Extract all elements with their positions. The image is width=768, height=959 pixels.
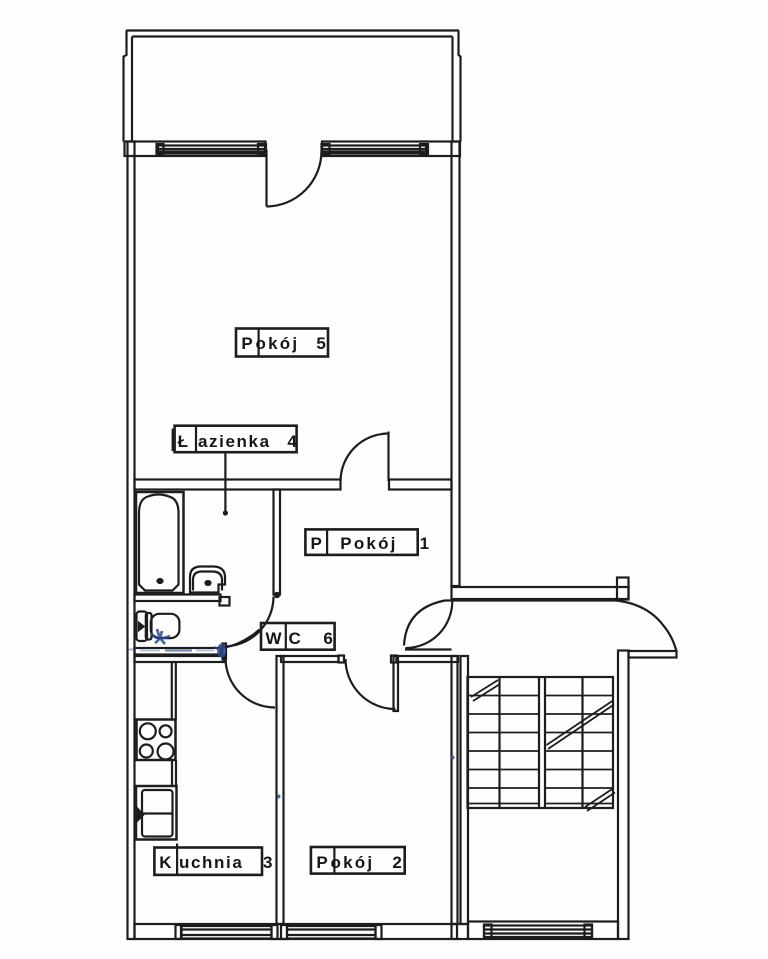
svg-text:K: K: [159, 853, 173, 872]
svg-text:5: 5: [316, 334, 328, 353]
svg-text:2: 2: [392, 853, 404, 872]
svg-text:uchnia: uchnia: [179, 853, 243, 872]
svg-text:C: C: [289, 629, 303, 648]
svg-text:1: 1: [420, 534, 432, 553]
svg-text:4: 4: [287, 432, 299, 451]
svg-text:azienka: azienka: [198, 432, 271, 451]
svg-text:Ł: Ł: [178, 432, 191, 451]
svg-text:6: 6: [323, 629, 335, 648]
svg-text:Pokój: Pokój: [340, 534, 397, 553]
svg-text:3: 3: [263, 853, 275, 872]
svg-text:P: P: [241, 334, 255, 353]
svg-text:okój: okój: [256, 334, 300, 353]
svg-text:W: W: [266, 629, 284, 648]
svg-text:P: P: [316, 853, 330, 872]
svg-text:P: P: [311, 534, 325, 553]
svg-text:okój: okój: [331, 853, 375, 872]
